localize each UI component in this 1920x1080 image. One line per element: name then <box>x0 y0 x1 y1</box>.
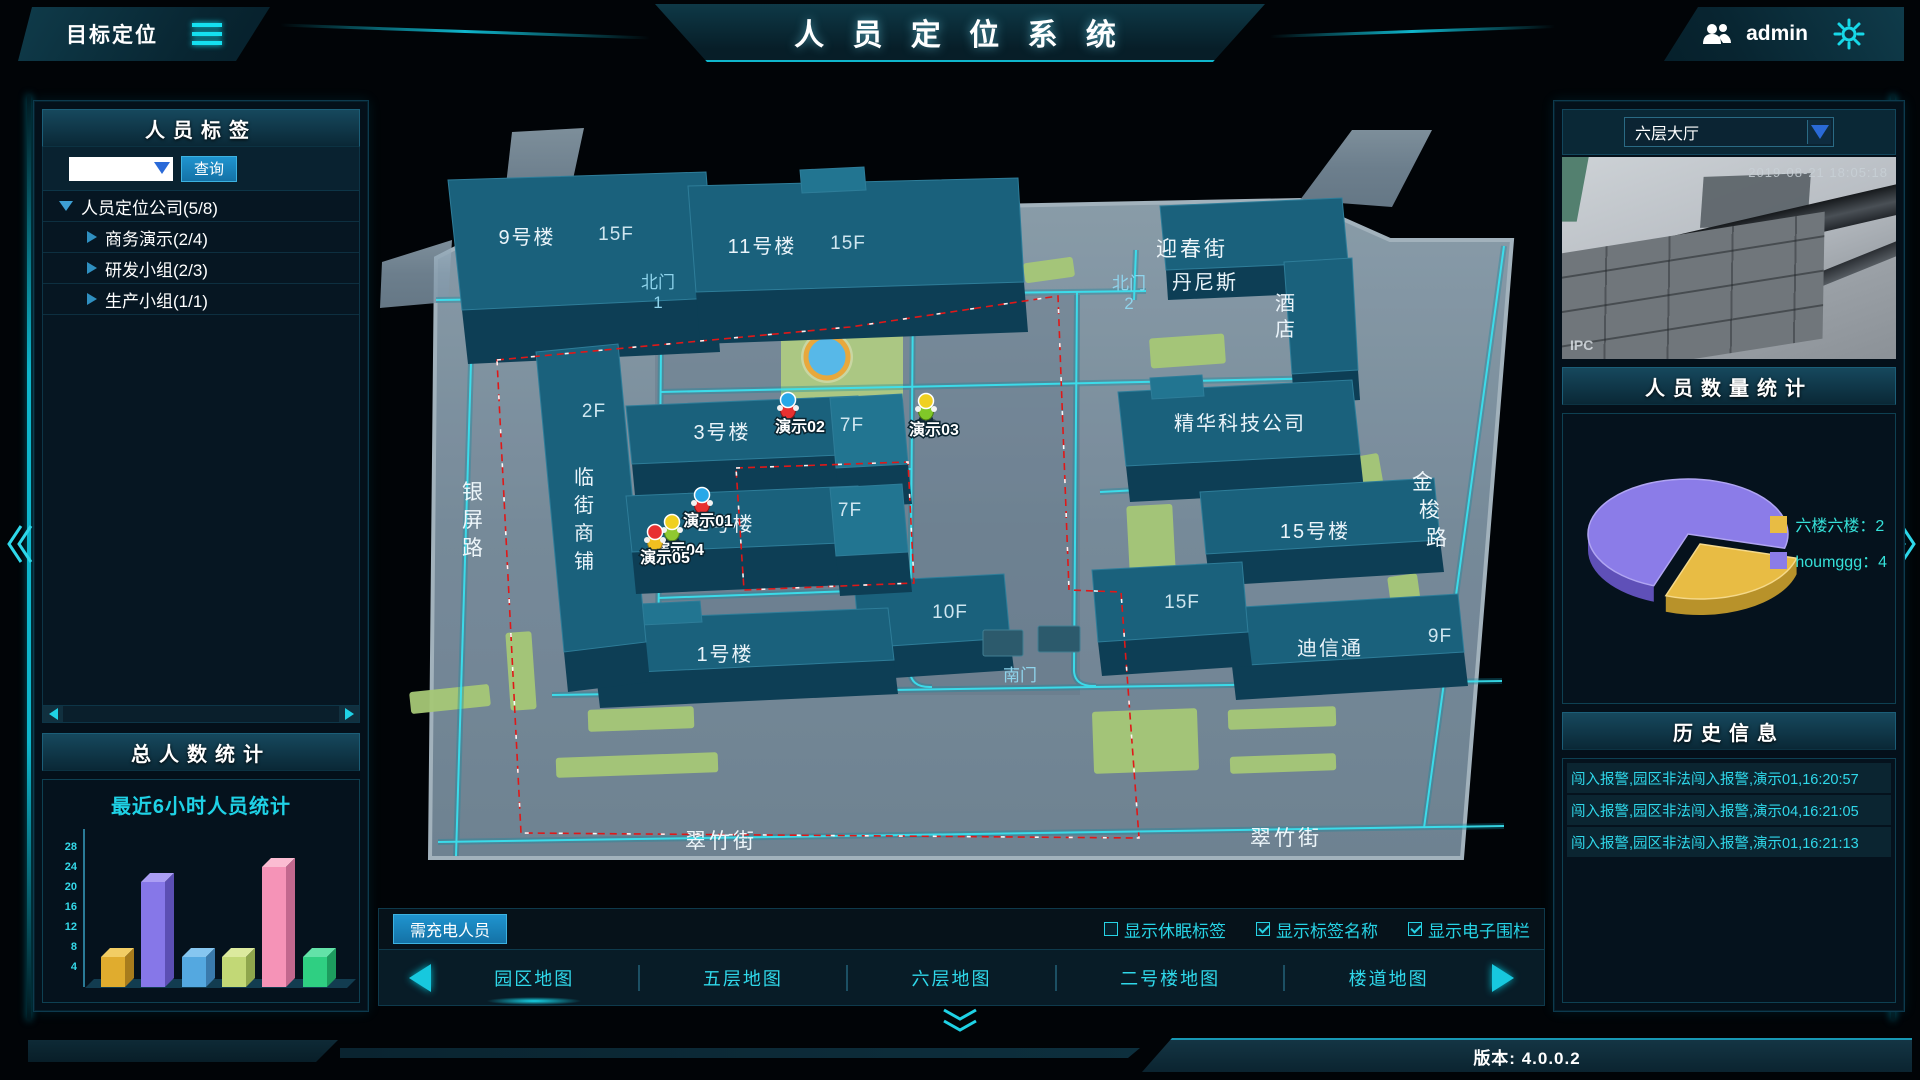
svg-text:路: 路 <box>1426 527 1450 550</box>
tab-separator <box>1055 965 1057 991</box>
svg-text:商: 商 <box>574 522 596 545</box>
svg-text:2: 2 <box>1124 294 1133 313</box>
building-15f: 15F <box>1092 562 1252 676</box>
unchecked-box-icon[interactable] <box>1104 922 1118 936</box>
active-tab-glow <box>486 997 582 1005</box>
checkbox-label: 显示标签名称 <box>1276 917 1378 942</box>
svg-text:店: 店 <box>1275 318 1297 341</box>
svg-text:3号楼: 3号楼 <box>693 421 750 444</box>
svg-text:迪信通: 迪信通 <box>1297 637 1363 660</box>
svg-text:精华科技公司: 精华科技公司 <box>1174 412 1306 435</box>
map-tab-bar: 园区地图五层地图六层地图二号楼地图楼道地图 <box>379 949 1544 1005</box>
bar <box>101 957 125 987</box>
building-11: 11号楼 15F <box>688 167 1028 344</box>
collapse-bottom-chevron-icon[interactable] <box>938 1008 982 1034</box>
svg-text:10F: 10F <box>932 602 968 623</box>
checked-box-icon[interactable] <box>1408 922 1422 936</box>
map-tab-5[interactable]: 楼道地图 <box>1345 959 1433 997</box>
building-jinghua: 精华科技公司 <box>1118 375 1364 502</box>
svg-text:9F: 9F <box>1428 626 1452 647</box>
svg-text:15号楼: 15号楼 <box>1280 520 1350 543</box>
building-9: 9号楼 15F <box>448 172 720 364</box>
tab-separator <box>846 965 848 991</box>
svg-text:银: 银 <box>462 481 486 504</box>
svg-text:屏: 屏 <box>462 509 486 532</box>
svg-text:南门: 南门 <box>1003 666 1037 685</box>
svg-text:梭: 梭 <box>1419 499 1443 522</box>
app-window: 9号楼 15F 11号楼 15F 丹尼斯 酒 店 <box>0 0 1920 1080</box>
svg-text:演示02: 演示02 <box>775 417 825 436</box>
svg-text:15F: 15F <box>830 233 866 254</box>
checked-box-icon[interactable] <box>1256 922 1270 936</box>
svg-text:金: 金 <box>1412 471 1436 494</box>
map-tab-2[interactable]: 五层地图 <box>699 959 787 997</box>
checkbox-label: 显示休眠标签 <box>1124 917 1226 942</box>
svg-text:15F: 15F <box>598 224 634 245</box>
svg-text:翠竹街: 翠竹街 <box>1250 827 1322 850</box>
tab-separator <box>638 965 640 991</box>
svg-text:临: 临 <box>574 466 596 489</box>
display-option-checkbox[interactable]: 显示标签名称 <box>1256 917 1378 942</box>
tab-separator <box>1283 965 1285 991</box>
need-charge-button[interactable]: 需充电人员 <box>393 914 507 944</box>
tabs-prev-arrow[interactable] <box>409 964 431 992</box>
svg-text:11号楼: 11号楼 <box>728 235 797 258</box>
bar <box>182 957 206 987</box>
svg-text:丹尼斯: 丹尼斯 <box>1172 271 1238 294</box>
map-tab-3[interactable]: 六层地图 <box>907 959 995 997</box>
map-tab-4[interactable]: 二号楼地图 <box>1116 959 1224 997</box>
svg-text:北门: 北门 <box>641 273 675 292</box>
map-tab-1[interactable]: 园区地图 <box>490 959 578 997</box>
svg-text:7F: 7F <box>838 500 862 521</box>
svg-text:1号楼: 1号楼 <box>696 643 753 666</box>
building-dixintong: 迪信通 9F <box>1226 594 1468 700</box>
svg-text:铺: 铺 <box>574 550 596 573</box>
svg-text:9号楼: 9号楼 <box>498 226 555 249</box>
checkbox-label: 显示电子围栏 <box>1428 917 1530 942</box>
bar <box>222 957 246 987</box>
bar <box>303 957 327 987</box>
map-tabs: 园区地图五层地图六层地图二号楼地图楼道地图 <box>431 959 1492 997</box>
svg-text:演示01: 演示01 <box>683 511 733 530</box>
display-options: 显示休眠标签显示标签名称显示电子围栏 <box>1104 917 1530 942</box>
svg-text:迎春街: 迎春街 <box>1156 238 1228 261</box>
map-control-bar: 需充电人员 显示休眠标签显示标签名称显示电子围栏 园区地图五层地图六层地图二号楼… <box>378 908 1545 1006</box>
svg-text:2F: 2F <box>582 401 606 422</box>
display-option-checkbox[interactable]: 显示电子围栏 <box>1408 917 1530 942</box>
svg-text:7F: 7F <box>840 415 864 436</box>
svg-text:路: 路 <box>462 537 486 560</box>
svg-text:北门: 北门 <box>1112 274 1146 293</box>
svg-text:翠竹街: 翠竹街 <box>685 830 757 853</box>
svg-text:酒: 酒 <box>1275 292 1297 315</box>
svg-text:演示05: 演示05 <box>640 548 690 567</box>
bar <box>262 867 286 987</box>
display-option-checkbox[interactable]: 显示休眠标签 <box>1104 917 1226 942</box>
svg-text:街: 街 <box>574 494 596 517</box>
tabs-next-arrow[interactable] <box>1492 964 1514 992</box>
bar <box>141 882 165 987</box>
svg-text:1: 1 <box>653 293 662 312</box>
svg-text:15F: 15F <box>1164 592 1200 613</box>
svg-text:演示03: 演示03 <box>909 420 959 439</box>
